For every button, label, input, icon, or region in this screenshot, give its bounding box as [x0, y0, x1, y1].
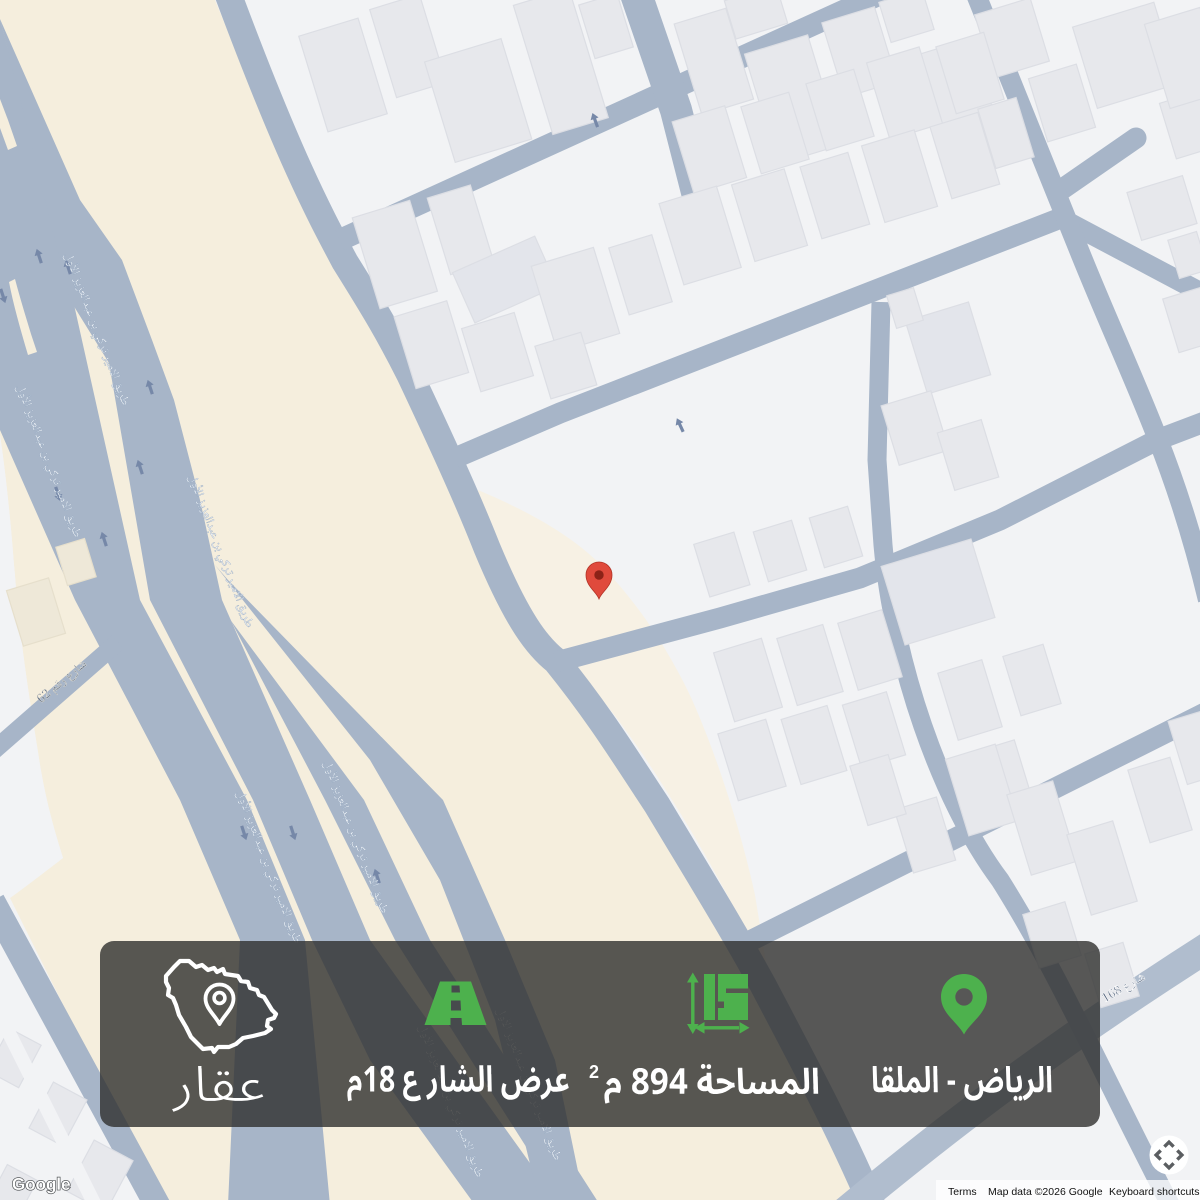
svg-text:Keyboard shortcuts: Keyboard shortcuts: [1109, 1186, 1199, 1198]
svg-text:2: 2: [589, 1062, 599, 1082]
svg-text:Map data ©2026 Google: Map data ©2026 Google: [988, 1186, 1103, 1198]
svg-text:Terms: Terms: [948, 1186, 977, 1198]
